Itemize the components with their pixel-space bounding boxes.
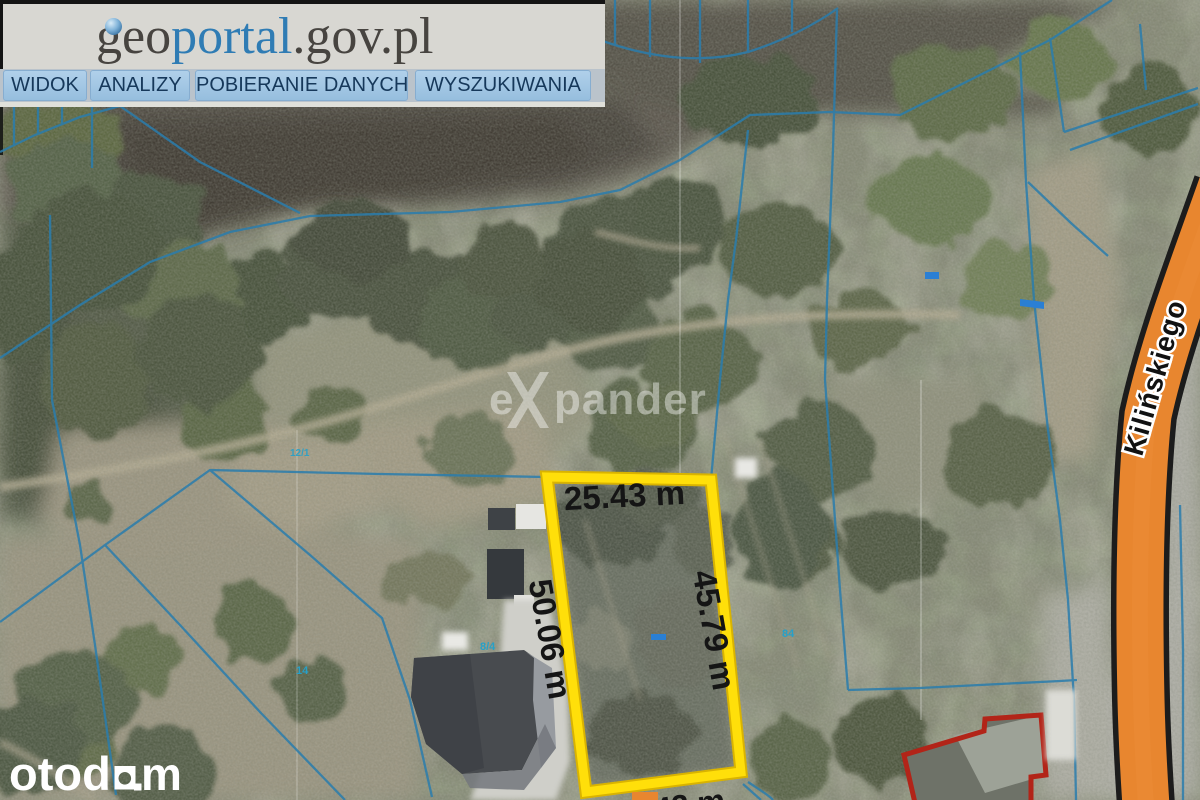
svg-text:m: m [141,748,182,800]
svg-text:14: 14 [296,665,309,677]
svg-text:otod: otod [9,747,111,800]
svg-text:84: 84 [782,628,795,640]
svg-text:25.43 m: 25.43 m [563,474,686,517]
svg-text:pander: pander [554,375,707,424]
svg-text:e: e [489,375,513,424]
svg-text:8/4: 8/4 [480,641,496,653]
svg-text:12/1: 12/1 [290,448,310,459]
